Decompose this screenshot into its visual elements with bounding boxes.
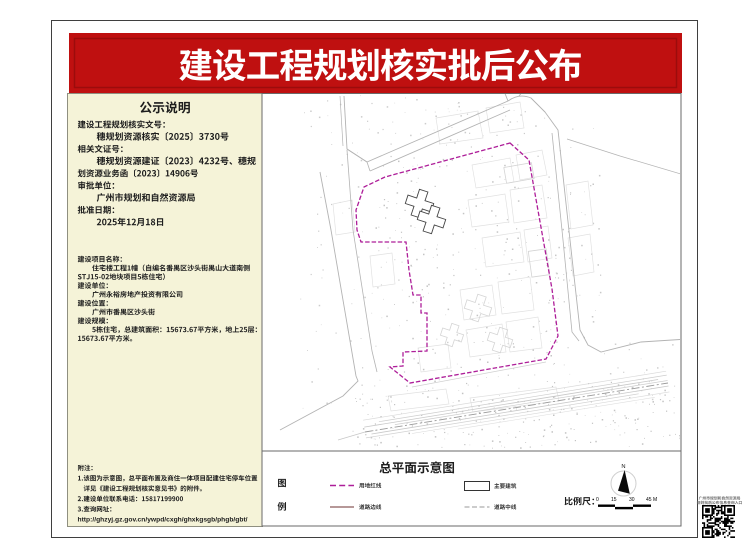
svg-text:45 M: 45 M	[646, 497, 657, 503]
svg-text:N: N	[621, 464, 625, 470]
svg-text:http://ghzyj.gz.gov.cn/ywpd/cx: http://ghzyj.gz.gov.cn/ywpd/cxgh/ghxkgsg…	[78, 516, 248, 523]
svg-text:15: 15	[611, 497, 617, 503]
svg-text:0: 0	[596, 497, 599, 503]
svg-text:30: 30	[629, 497, 635, 503]
